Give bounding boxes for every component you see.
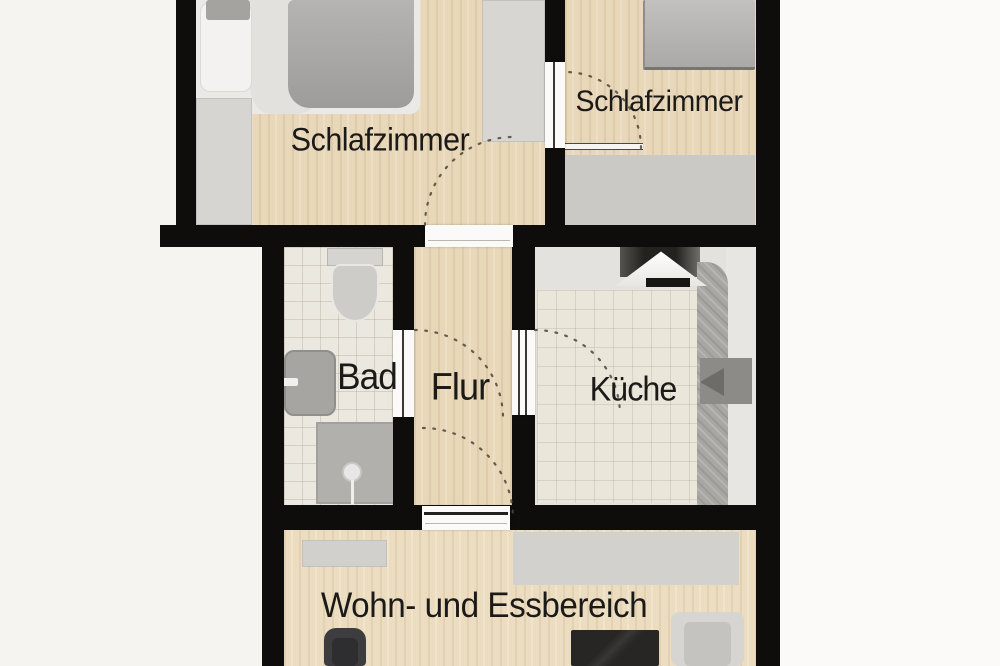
bed-single xyxy=(643,0,755,70)
floor-plan: Schlafzimmer Schlafzimmer Bad Flur Küche… xyxy=(0,0,1000,666)
dresser xyxy=(482,0,545,142)
dining-table xyxy=(571,630,659,666)
background-right xyxy=(780,0,1000,666)
room-label-bedroom-left: Schlafzimmer xyxy=(291,122,469,159)
room-label-hallway: Flur xyxy=(431,367,489,410)
door-leaf-line xyxy=(518,330,520,415)
rug-living xyxy=(513,532,739,585)
room-label-bathroom: Bad xyxy=(337,356,397,398)
bed-duvet xyxy=(288,0,414,108)
toilet-bowl xyxy=(331,264,379,322)
room-label-bedroom-right: Schlafzimmer xyxy=(576,85,743,119)
door-leaf-line xyxy=(525,330,527,415)
shower-hose xyxy=(351,480,354,504)
room-label-kitchen: Küche xyxy=(590,371,677,410)
door-kitchen xyxy=(512,330,535,415)
wardrobe xyxy=(196,98,252,225)
bed-cushion xyxy=(206,0,250,20)
wall-living-north xyxy=(262,505,780,530)
door-leaf-line xyxy=(402,330,404,417)
door-line xyxy=(425,523,507,524)
shower-head xyxy=(342,462,362,482)
door-line xyxy=(424,512,508,515)
door-living xyxy=(422,506,510,530)
door-line xyxy=(428,240,510,241)
sink-faucet xyxy=(282,378,298,386)
wall-bedroom-left-west xyxy=(176,0,196,247)
room-label-living-dining: Wohn- und Essbereich xyxy=(321,586,647,626)
door-bedrooms xyxy=(545,62,565,148)
door-bedroom-hallway xyxy=(425,225,513,247)
chair-seat xyxy=(332,638,358,666)
door-leaf-open xyxy=(565,143,643,150)
stove-front xyxy=(646,278,690,287)
counter-sink xyxy=(700,358,752,404)
armchair-seat xyxy=(684,622,731,666)
counter-sink-notch xyxy=(700,368,724,396)
shower xyxy=(316,422,398,504)
chair xyxy=(324,628,366,666)
armchair xyxy=(671,612,744,666)
wall-west-lower xyxy=(262,225,284,666)
door-leaf-line xyxy=(553,62,555,148)
sideboard xyxy=(302,540,387,567)
wall-east-outer xyxy=(756,0,780,666)
rug-bedroom-right xyxy=(565,155,755,228)
